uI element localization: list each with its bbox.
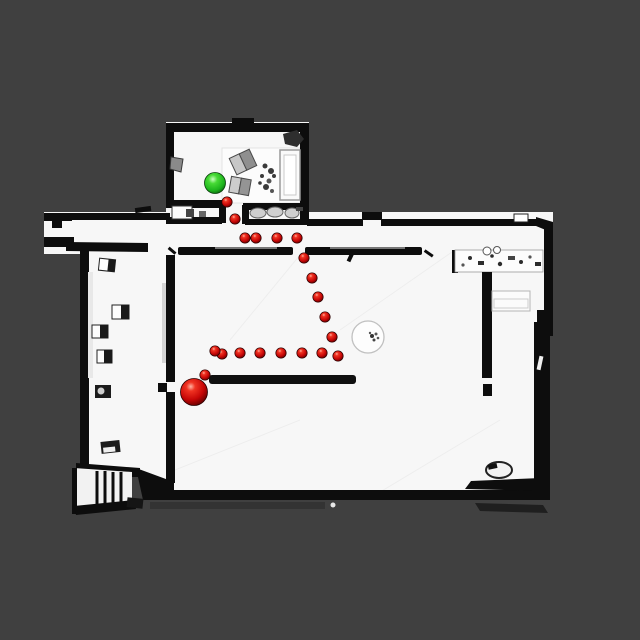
- path-dot: [272, 233, 282, 243]
- dark-item: [100, 440, 120, 454]
- path-dot: [297, 348, 307, 358]
- path-dot: [255, 348, 265, 358]
- armchair: [229, 176, 251, 195]
- green-sphere-marker: [205, 173, 226, 194]
- path-dot: [230, 214, 240, 224]
- long-table: [209, 375, 356, 384]
- couch: [280, 150, 300, 200]
- floorplan-canvas[interactable]: [0, 0, 640, 640]
- shadow: [150, 502, 325, 509]
- path-dot: [317, 348, 327, 358]
- path-dot: [307, 273, 317, 283]
- path-dot: [222, 197, 232, 207]
- path-dot: [210, 346, 220, 356]
- round-table: [352, 321, 384, 353]
- path-dot: [240, 233, 250, 243]
- red-sphere-marker: [181, 379, 208, 406]
- side-table: [492, 291, 530, 311]
- path-dot: [299, 253, 309, 263]
- path-dot: [313, 292, 323, 302]
- path-dot: [235, 348, 245, 358]
- path-dot: [292, 233, 302, 243]
- sofa-alcove: [250, 207, 303, 218]
- wall-object: [170, 157, 183, 172]
- path-dot: [320, 312, 330, 322]
- floor-speck: [331, 503, 336, 508]
- path-dot: [333, 351, 343, 361]
- path-dot: [327, 332, 337, 342]
- path-dot: [276, 348, 286, 358]
- path-dot: [251, 233, 261, 243]
- path-dot: [200, 370, 210, 380]
- scene-viewport[interactable]: [0, 0, 640, 640]
- dark-item: [95, 385, 111, 398]
